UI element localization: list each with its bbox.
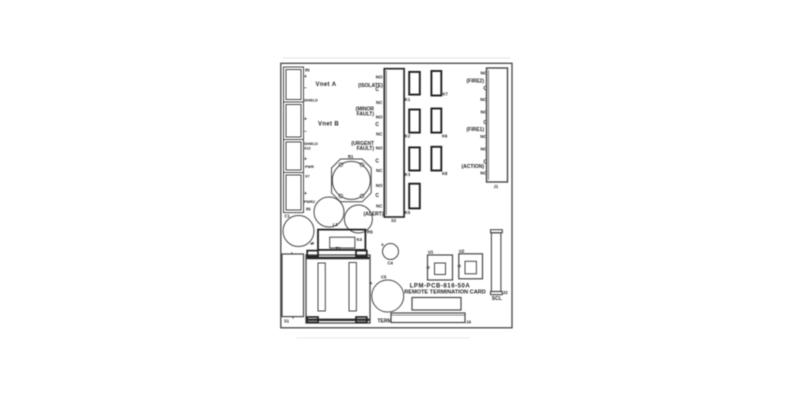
svg-text:–: – (304, 86, 307, 92)
svg-text:C5: C5 (381, 275, 387, 280)
svg-text:S1: S1 (284, 319, 290, 324)
svg-text:J1: J1 (494, 184, 499, 189)
svg-text:X7: X7 (305, 175, 310, 179)
svg-text:IN: IN (305, 68, 310, 73)
svg-text:C: C (375, 193, 379, 199)
svg-text:NO: NO (376, 75, 383, 80)
svg-text:FAULT): FAULT) (357, 112, 375, 118)
svg-text:K4: K4 (357, 237, 363, 242)
svg-text:+: + (370, 281, 373, 287)
svg-text:X2: X2 (391, 218, 397, 223)
svg-text:T1: T1 (336, 246, 342, 251)
svg-text:PWR: PWR (305, 165, 314, 169)
svg-text:+: + (381, 243, 384, 249)
svg-text:K7: K7 (443, 92, 449, 97)
svg-text:U2: U2 (459, 249, 465, 254)
svg-text:NC: NC (376, 132, 383, 137)
svg-text:NC: NC (376, 100, 383, 105)
svg-text:SHIELD: SHIELD (304, 99, 318, 103)
svg-text:NO: NO (376, 115, 383, 120)
svg-text:J2: J2 (503, 290, 509, 295)
svg-text:NO: NO (376, 146, 383, 151)
svg-text:PWR2: PWR2 (304, 200, 315, 204)
svg-text:NC: NC (376, 168, 383, 173)
svg-text:NO: NO (376, 183, 383, 188)
svg-text:+: + (304, 191, 307, 197)
svg-text:L1: L1 (333, 222, 339, 227)
svg-text:C: C (375, 87, 379, 93)
svg-text:R5: R5 (367, 230, 373, 235)
svg-text:U1: U1 (428, 250, 434, 255)
svg-text:K3: K3 (405, 172, 411, 177)
svg-text:C4: C4 (388, 261, 394, 266)
svg-text:Vnet A: Vnet A (316, 82, 337, 88)
svg-text:SCL: SCL (492, 296, 502, 302)
svg-text:(FIRE1): (FIRE1) (467, 127, 485, 133)
svg-text:+: + (304, 74, 307, 80)
svg-text:J4: J4 (466, 320, 472, 325)
svg-text:(ACTION): (ACTION) (462, 164, 485, 170)
svg-text:(ALERT): (ALERT) (364, 212, 384, 218)
svg-text:C: C (375, 122, 379, 128)
svg-text:(FIRE2): (FIRE2) (467, 79, 485, 85)
svg-text:SHIELD: SHIELD (304, 142, 318, 146)
svg-text:–: – (304, 129, 307, 135)
svg-text:K1: K1 (405, 97, 411, 102)
svg-text:FAULT): FAULT) (357, 146, 375, 152)
svg-text:NC: NC (376, 204, 383, 209)
svg-text:X22: X22 (304, 147, 311, 151)
svg-text:Vnet B: Vnet B (318, 122, 339, 128)
svg-text:+: + (312, 241, 315, 247)
svg-text:K2: K2 (405, 134, 411, 139)
svg-text:+: + (304, 117, 307, 123)
svg-text:K5: K5 (405, 210, 411, 215)
svg-text:K8: K8 (442, 171, 448, 176)
svg-text:TERM: TERM (378, 319, 392, 325)
svg-text:(ISOLATE): (ISOLATE) (358, 83, 383, 89)
svg-text:IN: IN (306, 207, 311, 212)
svg-text:K6: K6 (442, 134, 448, 139)
svg-text:C: C (375, 159, 379, 165)
svg-text:B1: B1 (348, 154, 354, 159)
svg-text:+: + (304, 157, 307, 163)
svg-text:REMOTE TERMINATION CARD: REMOTE TERMINATION CARD (404, 290, 486, 296)
